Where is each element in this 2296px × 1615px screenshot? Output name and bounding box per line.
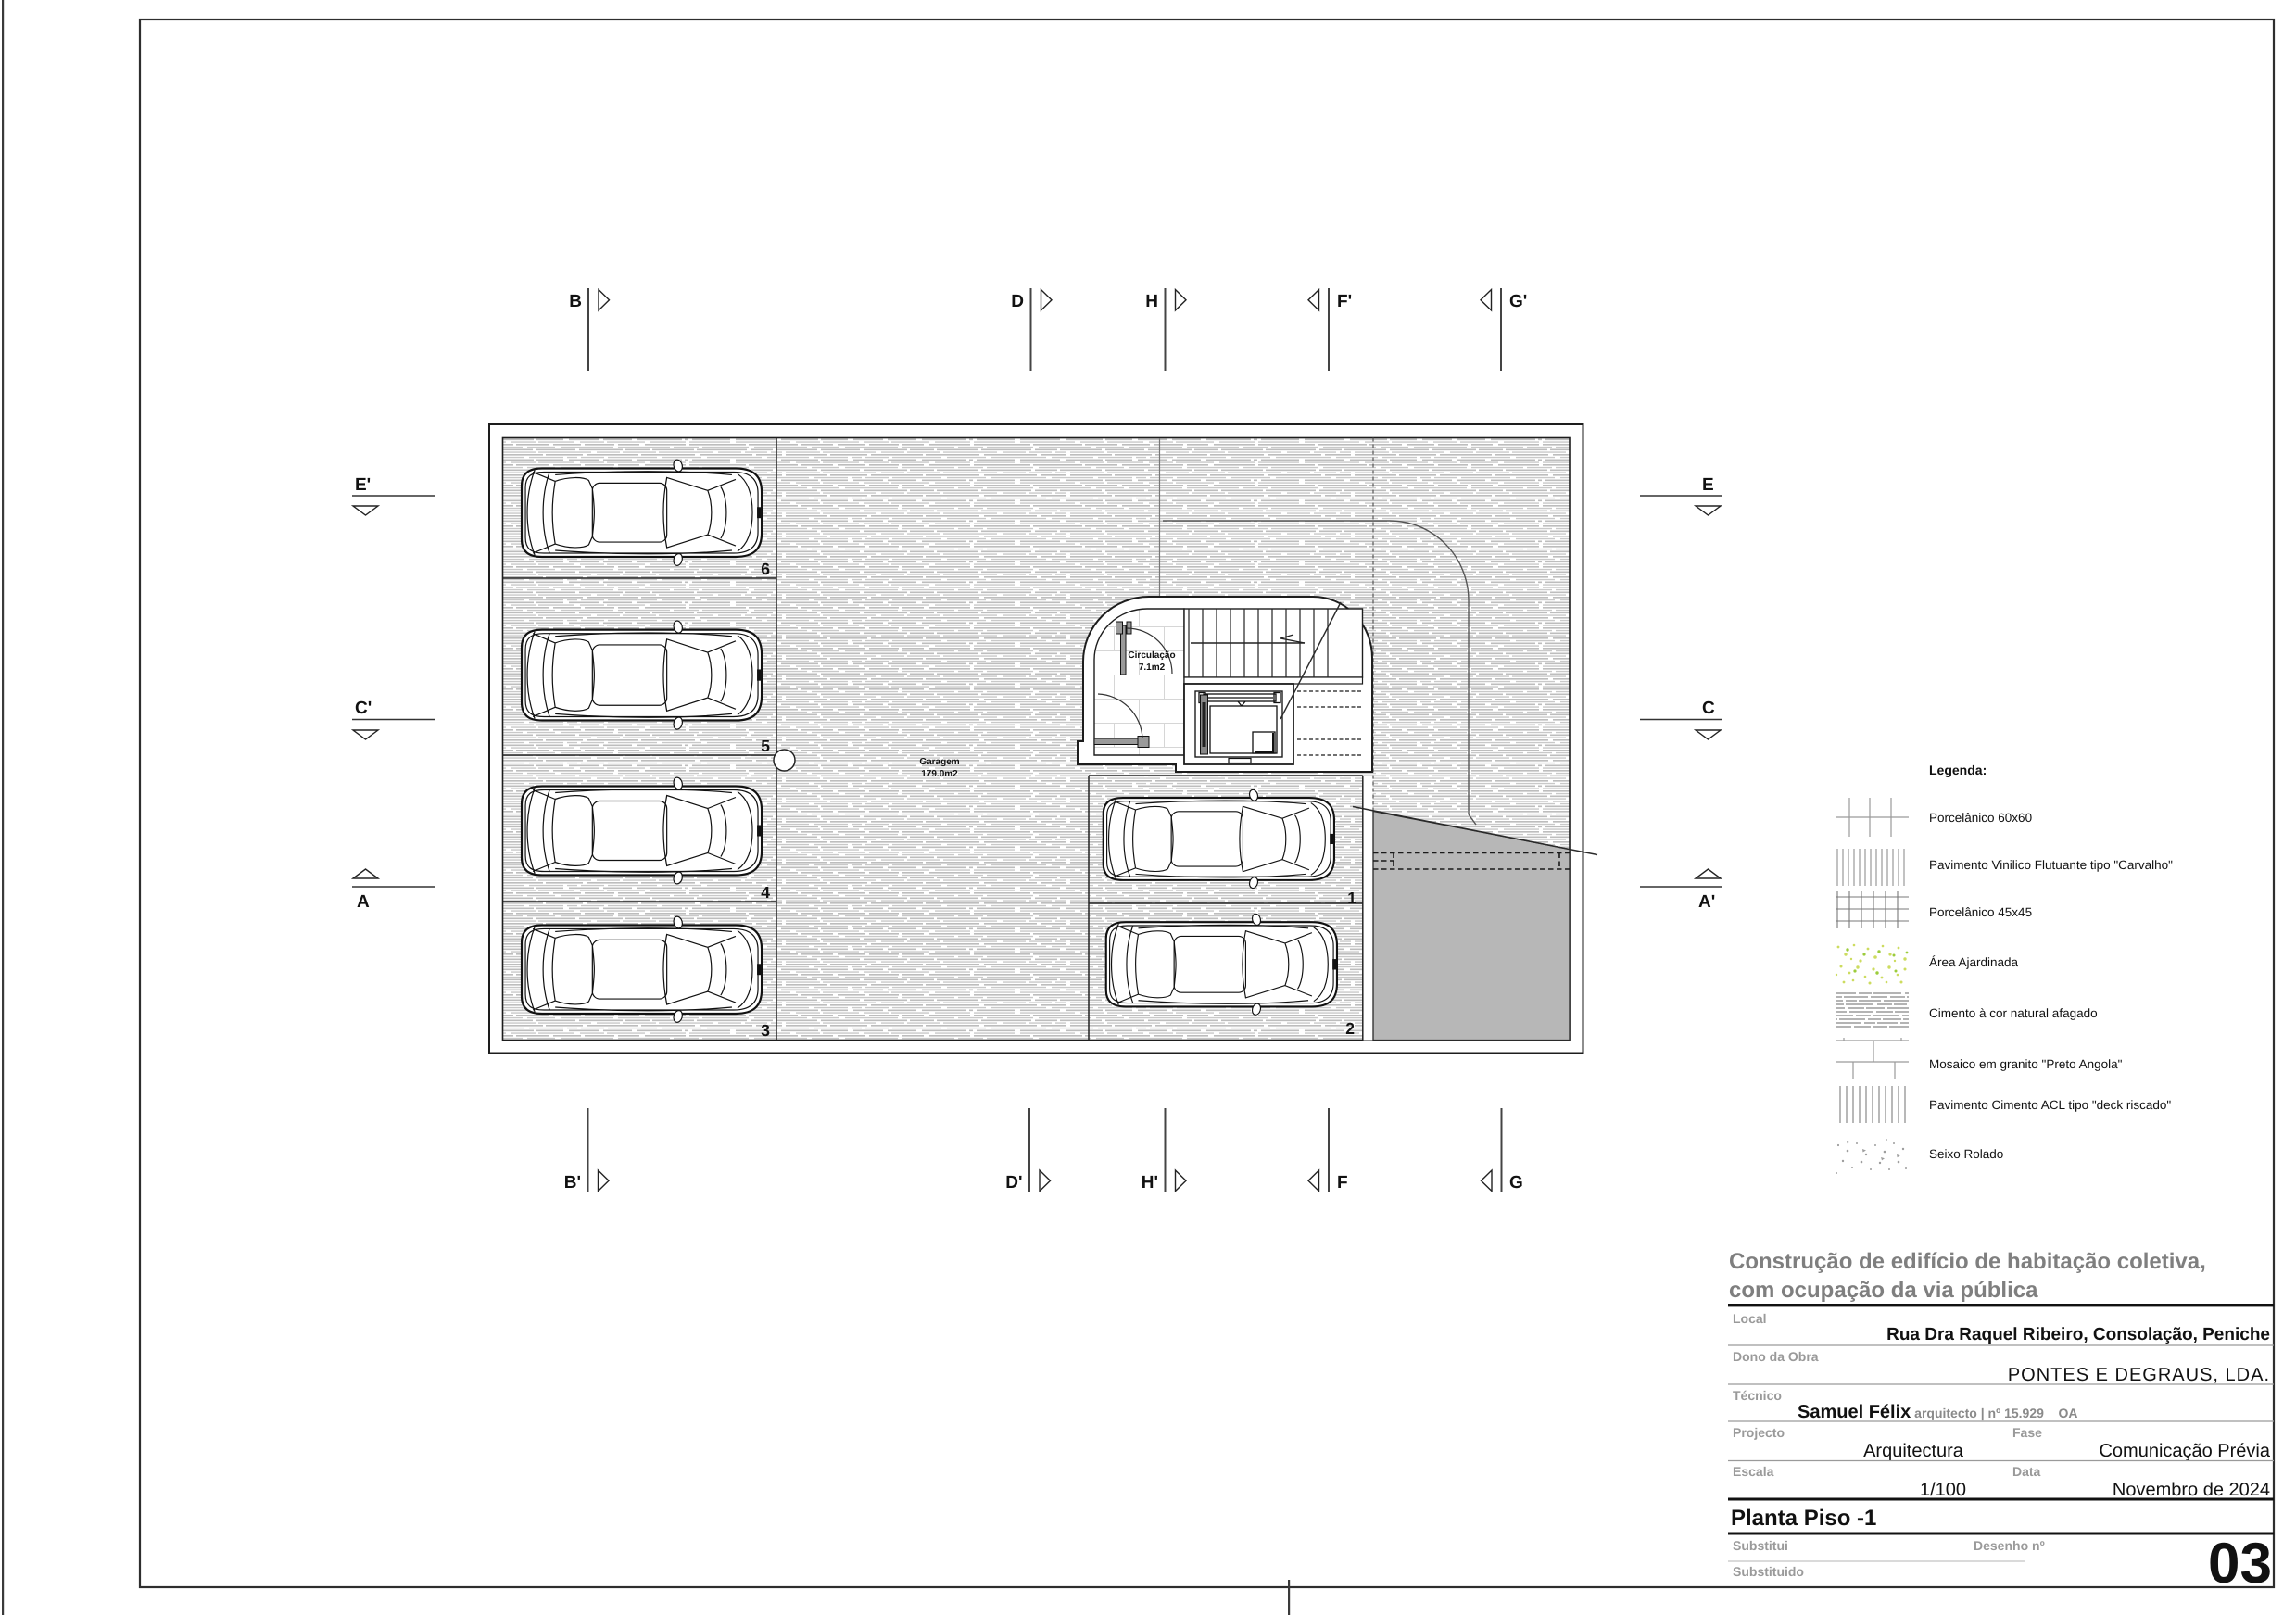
- svg-text:5: 5: [761, 737, 770, 755]
- svg-text:Garagem: Garagem: [919, 757, 959, 767]
- svg-text:Técnico: Técnico: [1733, 1388, 1782, 1403]
- svg-text:C': C': [355, 699, 372, 718]
- svg-text:Substituido: Substituido: [1733, 1564, 1804, 1579]
- svg-text:Samuel Félix arquitecto | nº 1: Samuel Félix arquitecto | nº 15.929 _ OA: [1798, 1402, 2077, 1422]
- svg-text:Local: Local: [1733, 1311, 1767, 1326]
- svg-text:H: H: [1145, 292, 1158, 311]
- svg-text:Área Ajardinada: Área Ajardinada: [1929, 955, 2019, 969]
- svg-text:E': E': [355, 475, 371, 495]
- svg-text:G: G: [1509, 1173, 1523, 1192]
- svg-text:Escala: Escala: [1733, 1464, 1774, 1479]
- svg-text:Projecto: Projecto: [1733, 1425, 1785, 1440]
- svg-text:B': B': [564, 1173, 581, 1192]
- svg-text:Cimento à cor natural afagado: Cimento à cor natural afagado: [1929, 1006, 2098, 1020]
- svg-text:7.1m2: 7.1m2: [1139, 662, 1166, 673]
- svg-text:Novembro de 2024: Novembro de 2024: [2113, 1480, 2270, 1500]
- svg-text:F: F: [1337, 1173, 1348, 1192]
- svg-text:G': G': [1509, 292, 1527, 311]
- svg-text:Legenda:: Legenda:: [1929, 763, 1987, 777]
- svg-text:Dono da Obra: Dono da Obra: [1733, 1349, 1819, 1364]
- svg-text:Desenho nº: Desenho nº: [1974, 1538, 2045, 1553]
- svg-text:179.0m2: 179.0m2: [921, 769, 958, 779]
- svg-text:Mosaico em granito "Preto Ango: Mosaico em granito "Preto Angola": [1929, 1057, 2123, 1071]
- svg-text:Arquitectura: Arquitectura: [1863, 1441, 1964, 1461]
- svg-text:Rua Dra Raquel Ribeiro, Consol: Rua Dra Raquel Ribeiro, Consolação, Peni…: [1886, 1325, 2270, 1344]
- svg-text:Pavimento Vinilico Flutuante t: Pavimento Vinilico Flutuante tipo "Carva…: [1929, 858, 2173, 872]
- svg-text:4: 4: [761, 883, 770, 902]
- svg-text:03: 03: [2208, 1532, 2272, 1596]
- svg-text:Construção de edifício de habi: Construção de edifício de habitação cole…: [1729, 1249, 2206, 1274]
- svg-text:Seixo Rolado: Seixo Rolado: [1929, 1147, 2003, 1161]
- svg-text:D: D: [1011, 292, 1024, 311]
- svg-text:Fase: Fase: [2012, 1425, 2042, 1440]
- svg-text:Porcelânico 60x60: Porcelânico 60x60: [1929, 811, 2032, 825]
- svg-text:6: 6: [761, 560, 770, 578]
- svg-text:Comunicação Prévia: Comunicação Prévia: [2099, 1441, 2270, 1461]
- svg-text:2: 2: [1345, 1019, 1355, 1038]
- svg-text:Substitui: Substitui: [1733, 1538, 1788, 1553]
- svg-text:Circulação: Circulação: [1128, 650, 1175, 661]
- svg-text:A: A: [357, 892, 370, 912]
- svg-text:1: 1: [1347, 889, 1356, 907]
- svg-text:A': A': [1698, 892, 1715, 912]
- svg-text:3: 3: [761, 1021, 770, 1040]
- svg-text:Data: Data: [2012, 1464, 2041, 1479]
- svg-text:com ocupação da via pública: com ocupação da via pública: [1729, 1278, 2038, 1303]
- svg-text:H': H': [1142, 1173, 1158, 1192]
- svg-text:Porcelânico 45x45: Porcelânico 45x45: [1929, 905, 2032, 919]
- svg-text:1/100: 1/100: [1920, 1480, 1966, 1500]
- svg-text:C: C: [1702, 699, 1715, 718]
- svg-text:Pavimento Cimento ACL tipo "de: Pavimento Cimento ACL tipo "deck riscado…: [1929, 1098, 2171, 1112]
- svg-text:D': D': [1005, 1173, 1022, 1192]
- svg-text:Planta Piso -1: Planta Piso -1: [1731, 1506, 1876, 1531]
- svg-text:E: E: [1702, 475, 1714, 495]
- svg-text:PONTES E DEGRAUS, LDA.: PONTES E DEGRAUS, LDA.: [2008, 1365, 2270, 1385]
- svg-text:F': F': [1337, 292, 1352, 311]
- svg-text:B: B: [569, 292, 582, 311]
